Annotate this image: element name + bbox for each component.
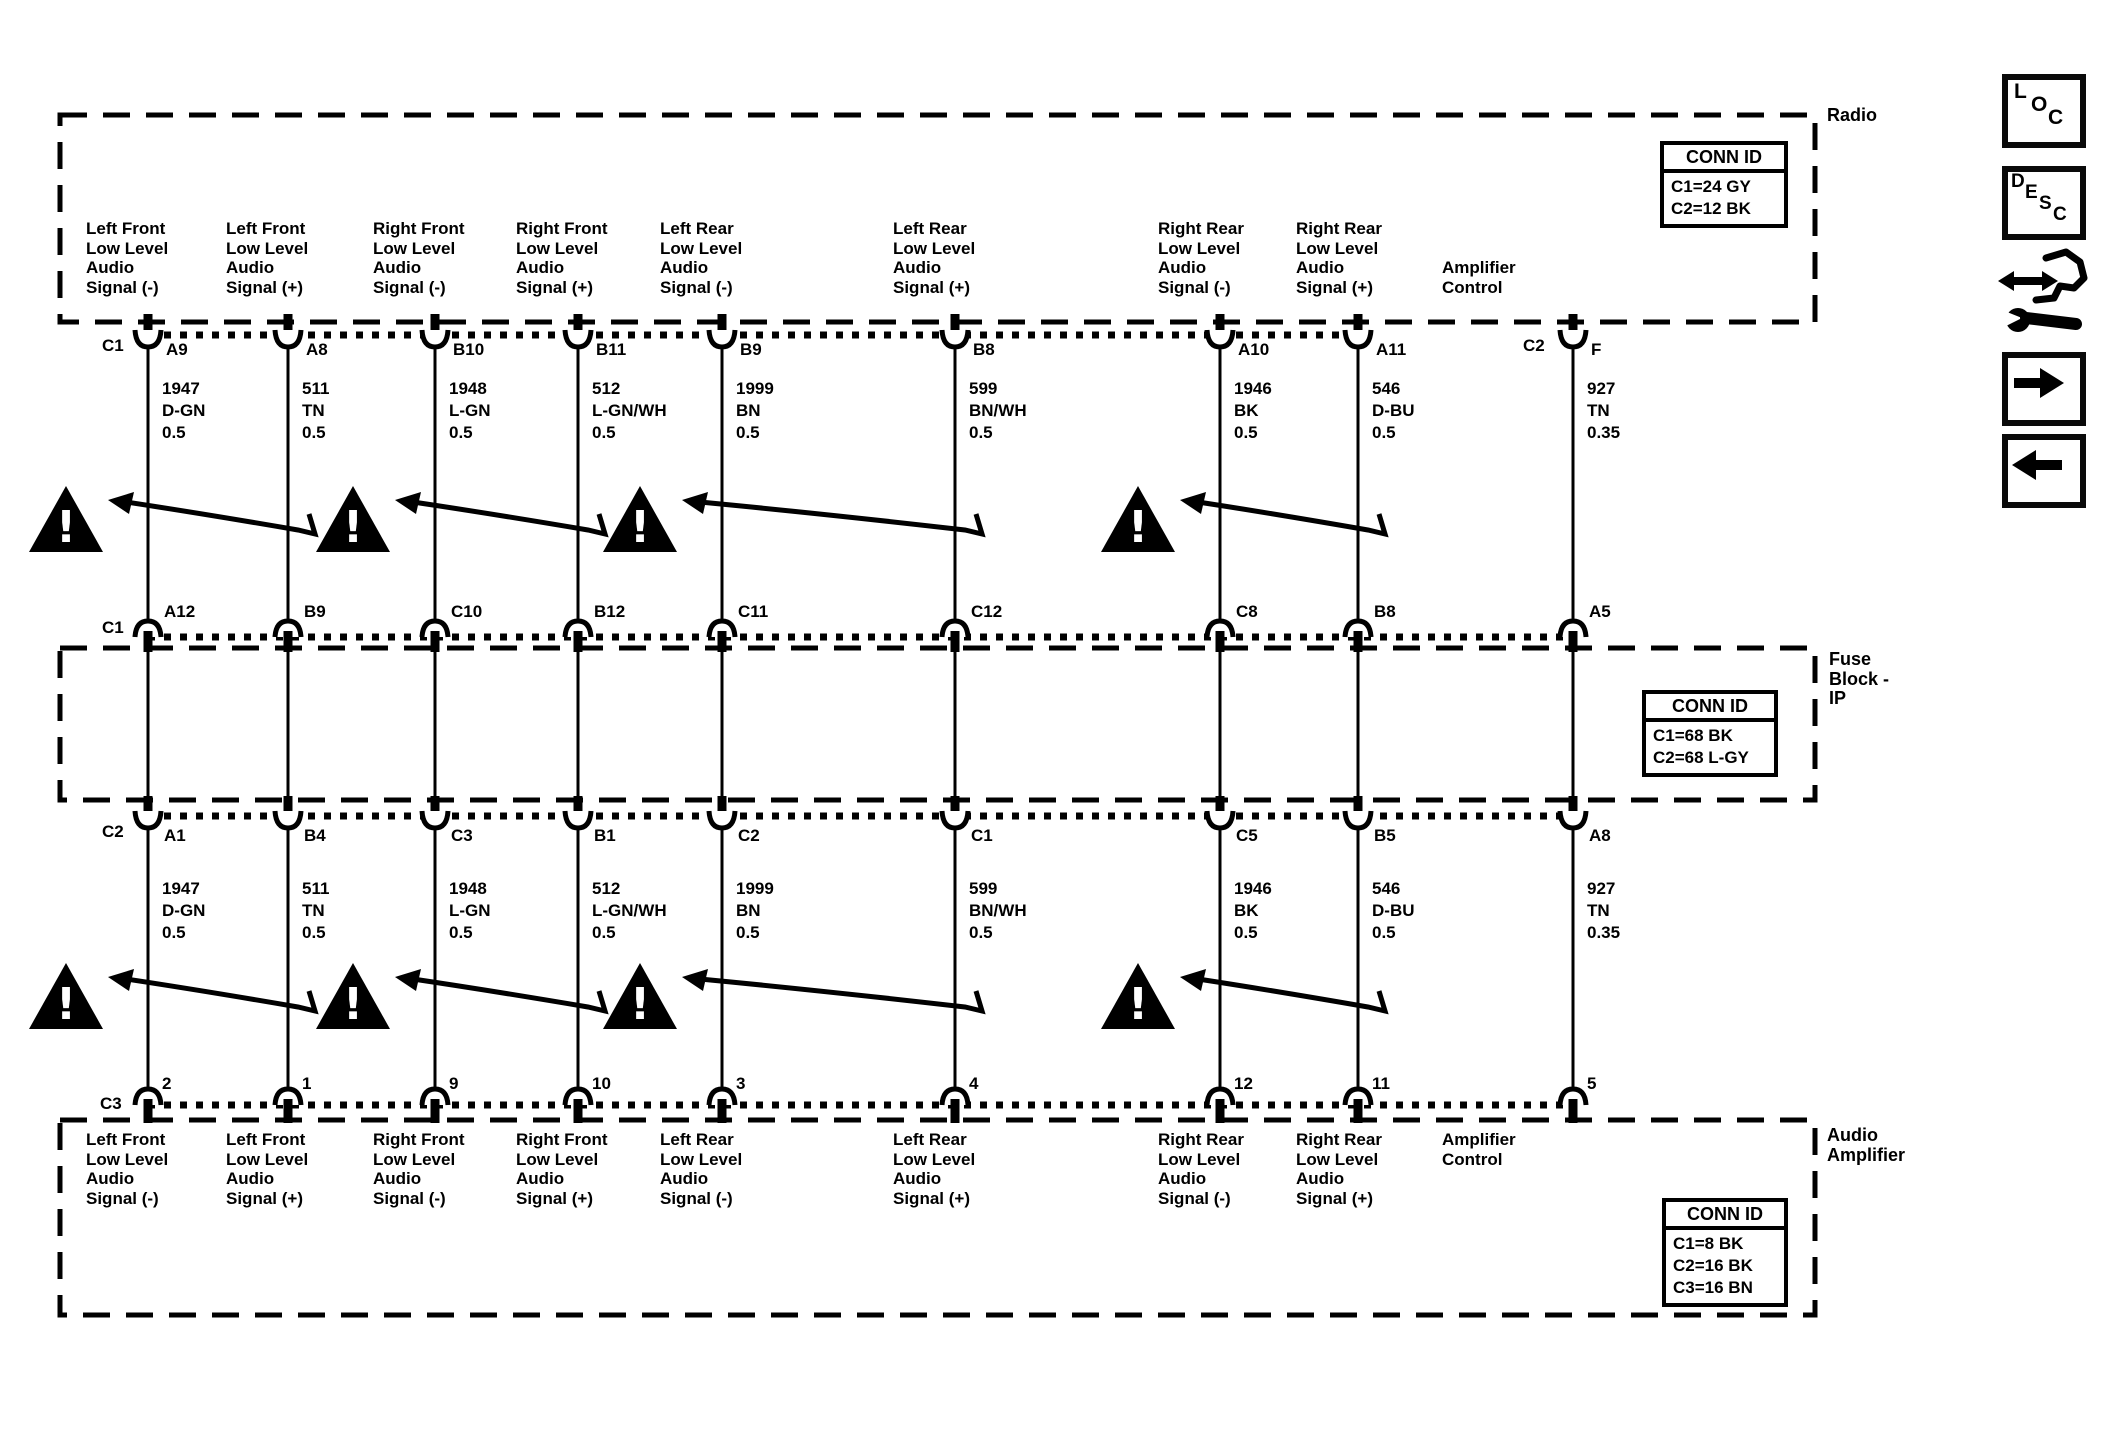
- left-arrow-icon: [2008, 440, 2068, 490]
- conn-id-table-fuse-block: CONN ID C1=68 BKC2=68 L-GY: [1642, 690, 1778, 777]
- pin-label-radio: B9: [740, 340, 762, 360]
- repair-instructions-glyph: [1996, 248, 2088, 340]
- twisted-pair-arrowhead: [1180, 492, 1206, 514]
- circuit-label: 512L-GN/WH0.5: [592, 878, 667, 944]
- circuit-label: 1948L-GN0.5: [449, 378, 491, 444]
- desc-button[interactable]: DESC: [2002, 166, 2086, 240]
- pin-label-amp: 1: [302, 1074, 311, 1094]
- circuit-label: 599BN/WH0.5: [969, 378, 1027, 444]
- conn-id-header: CONN ID: [1646, 694, 1774, 722]
- signal-label-bottom: Right FrontLow LevelAudioSignal (-): [373, 1130, 465, 1208]
- twisted-pair-arrowhead: [1180, 969, 1206, 991]
- box-title-fuse-block: FuseBlock -IP: [1829, 650, 1889, 709]
- pin-label-amp: 10: [592, 1074, 611, 1094]
- signal-label-bottom: Right RearLow LevelAudioSignal (+): [1296, 1130, 1382, 1208]
- pin-label-fuse-top: C8: [1236, 602, 1258, 622]
- signal-label-bottom: AmplifierControl: [1442, 1130, 1516, 1169]
- wiring-diagram-page: !!!!!!!! Left FrontLow LevelAudioSignal …: [0, 0, 2118, 1429]
- pin-arc: [1345, 811, 1371, 828]
- repair-instructions-icon[interactable]: [1996, 248, 2088, 340]
- signal-label-top: Left FrontLow LevelAudioSignal (-): [86, 219, 168, 297]
- pin-arc: [422, 811, 448, 828]
- pin-label-fuse-bottom: B5: [1374, 826, 1396, 846]
- circuit-label: 1947D-GN0.5: [162, 378, 205, 444]
- pin-label-fuse-bottom: A1: [164, 826, 186, 846]
- twisted-pair-arrow: [700, 979, 982, 1011]
- pin-arc: [709, 811, 735, 828]
- button-letter: C: [2048, 106, 2063, 130]
- signal-label-bottom: Left RearLow LevelAudioSignal (+): [893, 1130, 975, 1208]
- twisted-pair-arrowhead: [108, 492, 134, 514]
- button-letter: O: [2031, 93, 2047, 117]
- pin-label-fuse-bottom: C3: [451, 826, 473, 846]
- twisted-pair-arrowhead: [108, 969, 134, 991]
- pin-label-fuse-top: B12: [594, 602, 625, 622]
- pin-label-fuse-bottom: B1: [594, 826, 616, 846]
- warning-exclamation: !: [56, 979, 76, 1030]
- pin-label-fuse-bottom: C1: [971, 826, 993, 846]
- back-arrow-button[interactable]: [2002, 434, 2086, 508]
- warning-exclamation: !: [1128, 502, 1148, 553]
- pin-label-fuse-top: C10: [451, 602, 482, 622]
- pin-label-fuse-top: A5: [1589, 602, 1611, 622]
- pin-label-radio: A8: [306, 340, 328, 360]
- circuit-label: 927TN0.35: [1587, 378, 1620, 444]
- pin-label-amp: 3: [736, 1074, 745, 1094]
- warning-exclamation: !: [630, 502, 650, 553]
- twisted-pair-arrow: [413, 502, 605, 534]
- pin-label-fuse-bottom: A8: [1589, 826, 1611, 846]
- pin-label-fuse-bottom: C2: [738, 826, 760, 846]
- right-arrow-icon: [2008, 358, 2068, 408]
- pin-arc: [422, 330, 448, 347]
- signal-label-top: Right FrontLow LevelAudioSignal (-): [373, 219, 465, 297]
- button-letter: E: [2025, 182, 2038, 204]
- signal-label-top: Right FrontLow LevelAudioSignal (+): [516, 219, 608, 297]
- pin-label-amp: 4: [969, 1074, 978, 1094]
- pin-label-fuse-bottom: C5: [1236, 826, 1258, 846]
- pin-arc: [1207, 330, 1233, 347]
- signal-label-top: Left RearLow LevelAudioSignal (-): [660, 219, 742, 297]
- button-letter: D: [2011, 171, 2025, 193]
- warning-exclamation: !: [630, 979, 650, 1030]
- pin-arc: [1345, 330, 1371, 347]
- signal-label-top: Left RearLow LevelAudioSignal (+): [893, 219, 975, 297]
- pin-label-fuse-top: C12: [971, 602, 1002, 622]
- pin-label-radio: A9: [166, 340, 188, 360]
- circuit-label: 1948L-GN0.5: [449, 878, 491, 944]
- circuit-label: 927TN0.35: [1587, 878, 1620, 944]
- signal-label-top: Right RearLow LevelAudioSignal (-): [1158, 219, 1244, 297]
- pin-arc: [565, 811, 591, 828]
- circuit-label: 1999BN0.5: [736, 378, 774, 444]
- diagram-graphics: !!!!!!!!: [0, 0, 2118, 1429]
- warning-exclamation: !: [343, 502, 363, 553]
- pin-label-fuse-bottom: B4: [304, 826, 326, 846]
- twisted-pair-arrowhead: [395, 969, 421, 991]
- pin-label-amp: 9: [449, 1074, 458, 1094]
- conn-id-table-audio-amplifier: CONN ID C1=8 BKC2=16 BKC3=16 BN: [1662, 1198, 1788, 1307]
- pin-label-radio: B10: [453, 340, 484, 360]
- pin-label-radio: A11: [1376, 340, 1406, 360]
- pin-label-radio: B11: [596, 340, 626, 360]
- fuse-block-box: [60, 648, 1815, 800]
- connector-designator-radio-c1: C1: [102, 336, 124, 356]
- pin-label-amp: 11: [1372, 1074, 1390, 1094]
- pin-arc: [1560, 811, 1586, 828]
- connector-designator-fuse-c2: C2: [102, 822, 124, 842]
- pin-label-amp: 2: [162, 1074, 171, 1094]
- pin-arc: [275, 811, 301, 828]
- pin-label-fuse-top: C11: [738, 602, 768, 622]
- signal-label-top: Left FrontLow LevelAudioSignal (+): [226, 219, 308, 297]
- button-letter: L: [2014, 80, 2027, 104]
- warning-exclamation: !: [1128, 979, 1148, 1030]
- pin-label-fuse-top: A12: [164, 602, 195, 622]
- pin-label-amp: 5: [1587, 1074, 1596, 1094]
- circuit-label: 546D-BU0.5: [1372, 878, 1415, 944]
- pin-arc: [135, 811, 161, 828]
- circuit-label: 546D-BU0.5: [1372, 378, 1415, 444]
- loc-button[interactable]: LOC: [2002, 74, 2086, 148]
- twisted-pair-arrowhead: [682, 492, 708, 514]
- button-letter: S: [2039, 193, 2052, 215]
- pin-arc: [135, 330, 161, 347]
- signal-label-top: AmplifierControl: [1442, 258, 1516, 297]
- pin-label-radio: F: [1591, 340, 1601, 360]
- circuit-label: 1946BK0.5: [1234, 878, 1272, 944]
- pin-arc: [942, 330, 968, 347]
- signal-label-bottom: Left FrontLow LevelAudioSignal (-): [86, 1130, 168, 1208]
- box-title-radio: Radio: [1827, 106, 1877, 126]
- pin-label-radio: B8: [973, 340, 995, 360]
- circuit-label: 1946BK0.5: [1234, 378, 1272, 444]
- pin-arc: [565, 330, 591, 347]
- circuit-label: 511TN0.5: [302, 378, 329, 444]
- circuit-label: 511TN0.5: [302, 878, 329, 944]
- button-letter: C: [2053, 204, 2067, 226]
- warning-exclamation: !: [56, 502, 76, 553]
- conn-id-header: CONN ID: [1664, 145, 1784, 173]
- circuit-label: 599BN/WH0.5: [969, 878, 1027, 944]
- conn-id-header: CONN ID: [1666, 1202, 1784, 1230]
- pin-arc: [1560, 330, 1586, 347]
- twisted-pair-arrowhead: [682, 969, 708, 991]
- signal-label-bottom: Left FrontLow LevelAudioSignal (+): [226, 1130, 308, 1208]
- connector-designator-radio-c2: C2: [1523, 336, 1545, 356]
- circuit-label: 1999BN0.5: [736, 878, 774, 944]
- conn-id-table-radio: CONN ID C1=24 GYC2=12 BK: [1660, 141, 1788, 228]
- next-arrow-button[interactable]: [2002, 352, 2086, 426]
- warning-exclamation: !: [343, 979, 363, 1030]
- conn-id-rows: C1=8 BKC2=16 BKC3=16 BN: [1666, 1230, 1784, 1303]
- circuit-label: 512L-GN/WH0.5: [592, 378, 667, 444]
- twisted-pair-arrow: [700, 502, 982, 534]
- conn-id-rows: C1=24 GYC2=12 BK: [1664, 173, 1784, 224]
- pin-label-amp: 12: [1234, 1074, 1253, 1094]
- twisted-pair-arrow: [413, 979, 605, 1011]
- conn-id-rows: C1=68 BKC2=68 L-GY: [1646, 722, 1774, 773]
- signal-label-bottom: Right RearLow LevelAudioSignal (-): [1158, 1130, 1244, 1208]
- pin-label-fuse-top: B9: [304, 602, 326, 622]
- pin-arc: [1207, 811, 1233, 828]
- pin-arc: [275, 330, 301, 347]
- twisted-pair-arrowhead: [395, 492, 421, 514]
- signal-label-bottom: Right FrontLow LevelAudioSignal (+): [516, 1130, 608, 1208]
- pin-arc: [709, 330, 735, 347]
- box-title-audio-amplifier: AudioAmplifier: [1827, 1126, 1905, 1165]
- signal-label-top: Right RearLow LevelAudioSignal (+): [1296, 219, 1382, 297]
- pin-arc: [942, 811, 968, 828]
- connector-designator-fuse-c1: C1: [102, 618, 124, 638]
- signal-label-bottom: Left RearLow LevelAudioSignal (-): [660, 1130, 742, 1208]
- connector-designator-amp-c3: C3: [100, 1094, 122, 1114]
- pin-label-fuse-top: B8: [1374, 602, 1396, 622]
- circuit-label: 1947D-GN0.5: [162, 878, 205, 944]
- pin-label-radio: A10: [1238, 340, 1269, 360]
